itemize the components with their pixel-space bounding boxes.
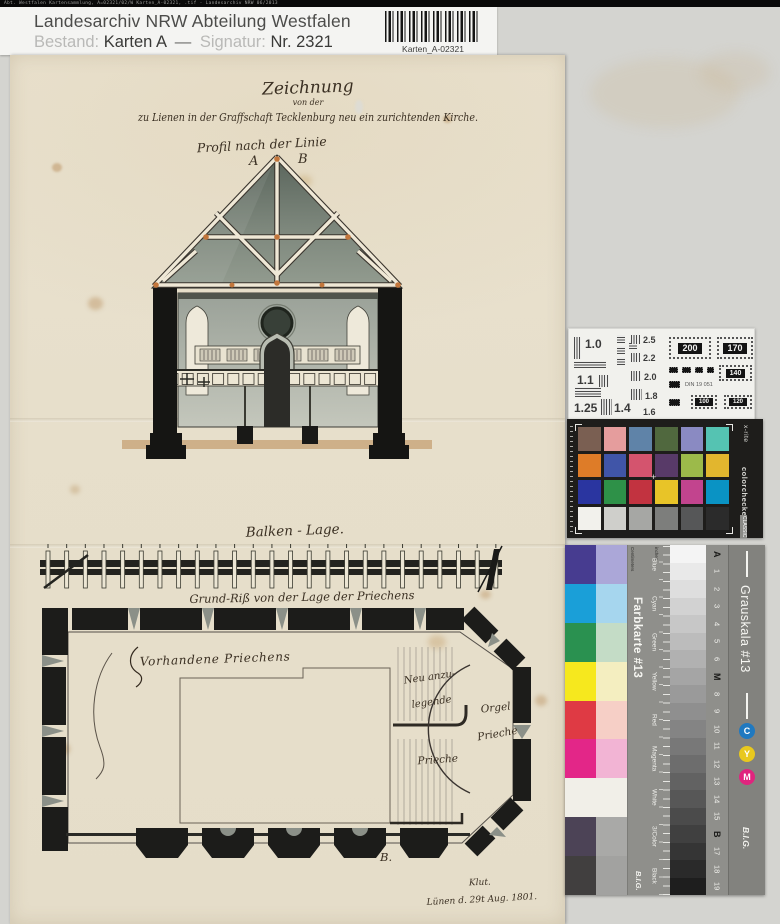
colorchecker-patch [578,480,601,504]
res-value: 140 [726,369,746,378]
colorchecker-patch [604,507,627,531]
grauskala-step [670,843,706,861]
res-dotbox: 170 [717,337,753,359]
grauskala-step [670,860,706,878]
farbkarte-row-label: Green [648,623,660,662]
farbkarte-row-label: 3/Color [648,817,660,856]
grauskala-step [670,773,706,791]
beam-post [289,551,293,588]
balustrade-panel [227,349,247,361]
scan-page: Abt. Westfalen Kartensammlung, A=02321/0… [0,0,780,924]
farbkarte-title: Farbkarte #13 [631,597,643,678]
colorchecker-patch [655,454,678,478]
res-value: 1.0 [585,337,602,351]
drawing-title-line1: Zeichnung [261,76,354,99]
beam-post [419,551,423,588]
dash-mark [746,693,748,719]
farbkarte-cell-pale [596,739,627,778]
beam-post [102,551,106,588]
grauskala-step [670,668,706,686]
beam-post [363,551,367,588]
beam-post [121,551,125,588]
corner-mark [575,527,582,534]
grauskala-index-label: 12 [706,755,728,773]
farbkarte-cell-pale [596,817,627,856]
plinth-right [302,426,318,444]
colorchecker-side-strip: x-rite colorchecker CLASSIC [734,419,760,538]
farbkarte-row-label: Red [648,701,660,740]
res-value: 200 [678,343,701,354]
door [264,367,290,427]
grauskala-index: A123456M89101112131415B171819 [706,545,728,895]
res-pattern [599,375,609,387]
farbkarte-cell-pale [596,545,627,584]
farbkarte-cell-pale [596,778,627,817]
beam-post [401,551,405,588]
farbkarte-cell-strong [565,662,596,701]
farbkarte-row [565,778,627,817]
farbkarte-cell-strong [565,623,596,662]
colorchecker-patch [629,507,652,531]
res-pattern [617,357,625,365]
beam-post [326,551,330,588]
colorchecker-patch [655,480,678,504]
res-minibox [707,367,714,373]
cym-dot: Y [739,746,755,762]
res-dotbox: 140 [719,365,752,381]
colorchecker-patch [681,454,704,478]
farbkarte-row-label: Blue [648,545,660,584]
church-cross-section [122,155,432,459]
colorchecker-patch [604,427,627,451]
res-minibox [695,367,703,373]
res-pattern [617,335,625,343]
grauskala-index-label: 2 [706,580,728,598]
res-value: 170 [723,343,746,354]
beam-post [270,551,274,588]
colorchecker-patch [655,507,678,531]
colorchecker-patch [681,480,704,504]
grauskala-index-label: 11 [706,738,728,756]
farbkarte-row [565,662,627,701]
signature-line2: Lünen d. 29t Aug. 1801. [425,892,537,908]
grauskala-title-strip: Grauskala #13 CYM B.I.G. [728,545,765,895]
farbkarte-row [565,856,627,895]
plan-curved-line [94,653,112,779]
separator: — [171,33,196,51]
grauskala-wedge [670,545,706,895]
farbkarte-row [565,739,627,778]
colorchecker-patch [655,427,678,451]
res-pattern [574,361,606,368]
farbkarte-row-label: White [648,778,660,817]
grauskala-brand: B.I.G. [741,827,751,849]
farbkarte-row-label: Cyan [648,584,660,623]
cym-dots: CYM [739,723,755,785]
farbkarte-row [565,817,627,856]
res-value: 100 [695,398,713,406]
res-pattern [631,371,641,381]
farbkarte-cell-pale [596,701,627,740]
beam-post [251,551,255,588]
res-value: 1.8 [645,391,658,401]
plinth-left [237,426,253,444]
grauskala-index-label: B [706,825,728,843]
grauskala-index-label: 10 [706,720,728,738]
res-pattern [601,399,612,415]
res-minibox [669,367,678,373]
balken-caption: Balken - Lage. [244,521,344,540]
farbkarte-cell-pale [596,584,627,623]
grauskala-index-label: 19 [706,878,728,896]
res-value: 2.0 [644,372,657,382]
beam-post [457,551,461,588]
colorchecker-card: + x-rite colorchecker CLASSIC [567,419,763,538]
colorchecker-patch [604,480,627,504]
colorchecker-patch [604,454,627,478]
classic-badge: CLASSIC [740,515,747,538]
grauskala-step [670,808,706,826]
farbkarte-cell-strong [565,584,596,623]
farbkarte-cell-strong [565,545,596,584]
plan-marker-b: B. [379,850,392,864]
farbkarte-row-label: Black [648,856,660,895]
din-label: DIN 19 051 [685,382,713,388]
res-value: 2.2 [643,353,656,363]
grauskala-step [670,790,706,808]
grauskala-index-label: 18 [706,860,728,878]
beam-layout-diagram [40,544,502,592]
plan-gallery-front-lower [390,813,462,823]
grauskala-step [670,598,706,616]
farbkarte-labels: BlueCyanGreenYellowRedMagentaWhite3/Colo… [648,545,660,895]
ruler-ticks [663,545,670,895]
calibration-strip: Centimeters inches BlueCyanGreenYellowRe… [565,545,765,895]
colorchecker-patch [629,454,652,478]
beam-post [177,551,181,588]
file-path-strip: Abt. Westfalen Kartensammlung, A=02321/0… [0,0,780,7]
res-pattern [617,346,625,354]
bestand-label: Bestand: [34,33,99,51]
center-cross-mark: + [651,472,656,482]
res-value: 2.5 [643,335,656,345]
res-pattern [574,337,581,359]
cym-dot: M [739,769,755,785]
farbkarte-row [565,584,627,623]
grauskala-step [670,878,706,896]
res-dotbox: 120 [724,395,752,409]
signatur-value: Nr. 2321 [270,33,332,51]
grauskala-step [670,650,706,668]
res-dotbox: 100 [691,395,717,409]
grauskala-index-label: A [706,545,728,563]
balustrade-panel [200,349,220,361]
res-value: 1.6 [643,407,656,417]
interior-lintel [178,293,378,299]
barcode [385,11,481,42]
plan-label-existing: Vorhandene Priechens [140,649,290,668]
res-value: 1.4 [614,401,631,415]
colorchecker-patch [629,480,652,504]
res-minibox [682,367,691,373]
barcode-block: Karten_A-02321 [382,11,484,53]
historical-drawing-sheet: Zeichnung von der zu Lienen in der Graff… [10,55,565,924]
colorchecker-patch [578,454,601,478]
corner-mark [726,527,733,534]
grauskala-index-label: 4 [706,615,728,633]
beam-post [307,551,311,588]
section-marker-b: B [297,152,308,167]
grauskala-index-label: 6 [706,650,728,668]
res-minibox [669,399,680,406]
beam-post [345,551,349,588]
grauskala-step [670,825,706,843]
plan-nave-rectangle [180,668,390,823]
grauskala-index-label: 8 [706,685,728,703]
farbkarte-cell-pale [596,662,627,701]
cym-dot: C [739,723,755,739]
grauskala-index-label: 13 [706,773,728,791]
farbkarte-cell-strong [565,739,596,778]
colorchecker-patch [706,454,729,478]
grauskala-step [670,633,706,651]
plan-label-orgel-prieche: Prieche [476,725,519,744]
grauskala-step [670,738,706,756]
farbkarte-cell-strong [565,817,596,856]
farbkarte-cell-pale [596,856,627,895]
grauskala-step [670,615,706,633]
beam-post [158,551,162,588]
archive-header: Landesarchiv NRW Abteilung Westfalen Bes… [0,7,497,55]
section-marker-a: A [248,154,258,169]
ruler-unit-left: Centimeters [630,547,635,571]
bestand-value: Karten A [104,33,166,51]
plan-label-orgel: Orgel [480,700,511,715]
farbkarte-cell-strong [565,778,596,817]
colorchecker-patch [706,480,729,504]
dash-mark [746,551,748,577]
plan-organ-gallery-arc [428,665,470,793]
colorchecker-patch [681,507,704,531]
grauskala-index-label: 14 [706,790,728,808]
colorchecker-wordmark: colorchecker [740,467,749,520]
grauskala-index-label: M [706,668,728,686]
farbkarte-row [565,545,627,584]
farbkarte-colors [565,545,627,895]
signatur-label: Signatur: [200,33,266,51]
grauskala-index-label: 5 [706,633,728,651]
farbkarte-brand: B.I.G. [634,871,643,891]
beam-post [382,551,386,588]
res-pattern [631,389,642,400]
grauskala-step [670,720,706,738]
grauskala-index-label: 3 [706,598,728,616]
res-dotbox: 200 [669,337,711,359]
farbkarte-row [565,623,627,662]
grauskala-step [670,755,706,773]
corner-mark [726,424,733,431]
resolution-test-chart: 1.0 2.5 2.2 2.0 1.8 1.1 1.25 1.4 1.6 200… [568,328,755,420]
res-pattern [631,353,640,362]
drawing-svg: Zeichnung von der zu Lienen in der Graff… [10,55,565,924]
drawing-title-line2: von der [293,98,325,107]
beam-post [233,551,237,588]
grauskala-step [670,580,706,598]
barcode-label: Karten_A-02321 [382,44,484,54]
beam-post [475,551,479,588]
grauskala-index-label: 9 [706,703,728,721]
res-value: 1.25 [574,401,597,415]
res-value: 120 [729,398,747,406]
grundriss-caption: Grund-Riß von der Lage der Priechens [189,588,414,606]
beam-post [195,551,199,588]
grauskala-step [670,563,706,581]
farbkarte-cell-pale [596,623,627,662]
grauskala-title: Grauskala #13 [738,585,752,673]
scan-artifact [700,52,770,92]
grauskala-step [670,703,706,721]
grauskala-index-label: 15 [706,808,728,826]
archive-reference: Bestand: Karten A — Signatur: Nr. 2321 [34,33,333,52]
plan-left-wall [42,667,68,851]
church-ground-plan: Vorhandene Priechens Neu anzu- legende O… [42,608,531,864]
farbkarte-row-label: Magenta [648,739,660,778]
grauskala-step [670,545,706,563]
xrite-logo: x-rite [742,425,749,442]
colorchecker-patch [681,427,704,451]
colorchecker-edge-ruler [570,425,573,532]
drawing-title-line3: zu Lienen in der Graffschaft Tecklenburg… [137,111,478,124]
farbkarte-cell-strong [565,856,596,895]
farbkarte-ruler-strip: Centimeters inches BlueCyanGreenYellowRe… [627,545,670,895]
farbkarte-cell-strong [565,701,596,740]
archive-title: Landesarchiv NRW Abteilung Westfalen [34,11,351,32]
res-pattern [575,387,601,397]
colorchecker-patch [629,427,652,451]
grauskala-index-label: 1 [706,563,728,581]
signature-line1: Klut. [468,878,491,889]
balustrade-panel [335,349,355,361]
beam-post [438,551,442,588]
res-pattern [631,335,640,344]
beam-post [139,551,143,588]
grauskala-step [670,685,706,703]
plan-label-new1: Neu anzu- [402,668,456,686]
res-value: 1.1 [577,373,594,387]
grauskala-index-label: 17 [706,843,728,861]
balustrade-panel [308,349,328,361]
res-minibox [669,381,680,388]
farbkarte-row-label: Yellow [648,662,660,701]
beam-post [214,551,218,588]
corner-mark [575,424,582,431]
farbkarte-row [565,701,627,740]
